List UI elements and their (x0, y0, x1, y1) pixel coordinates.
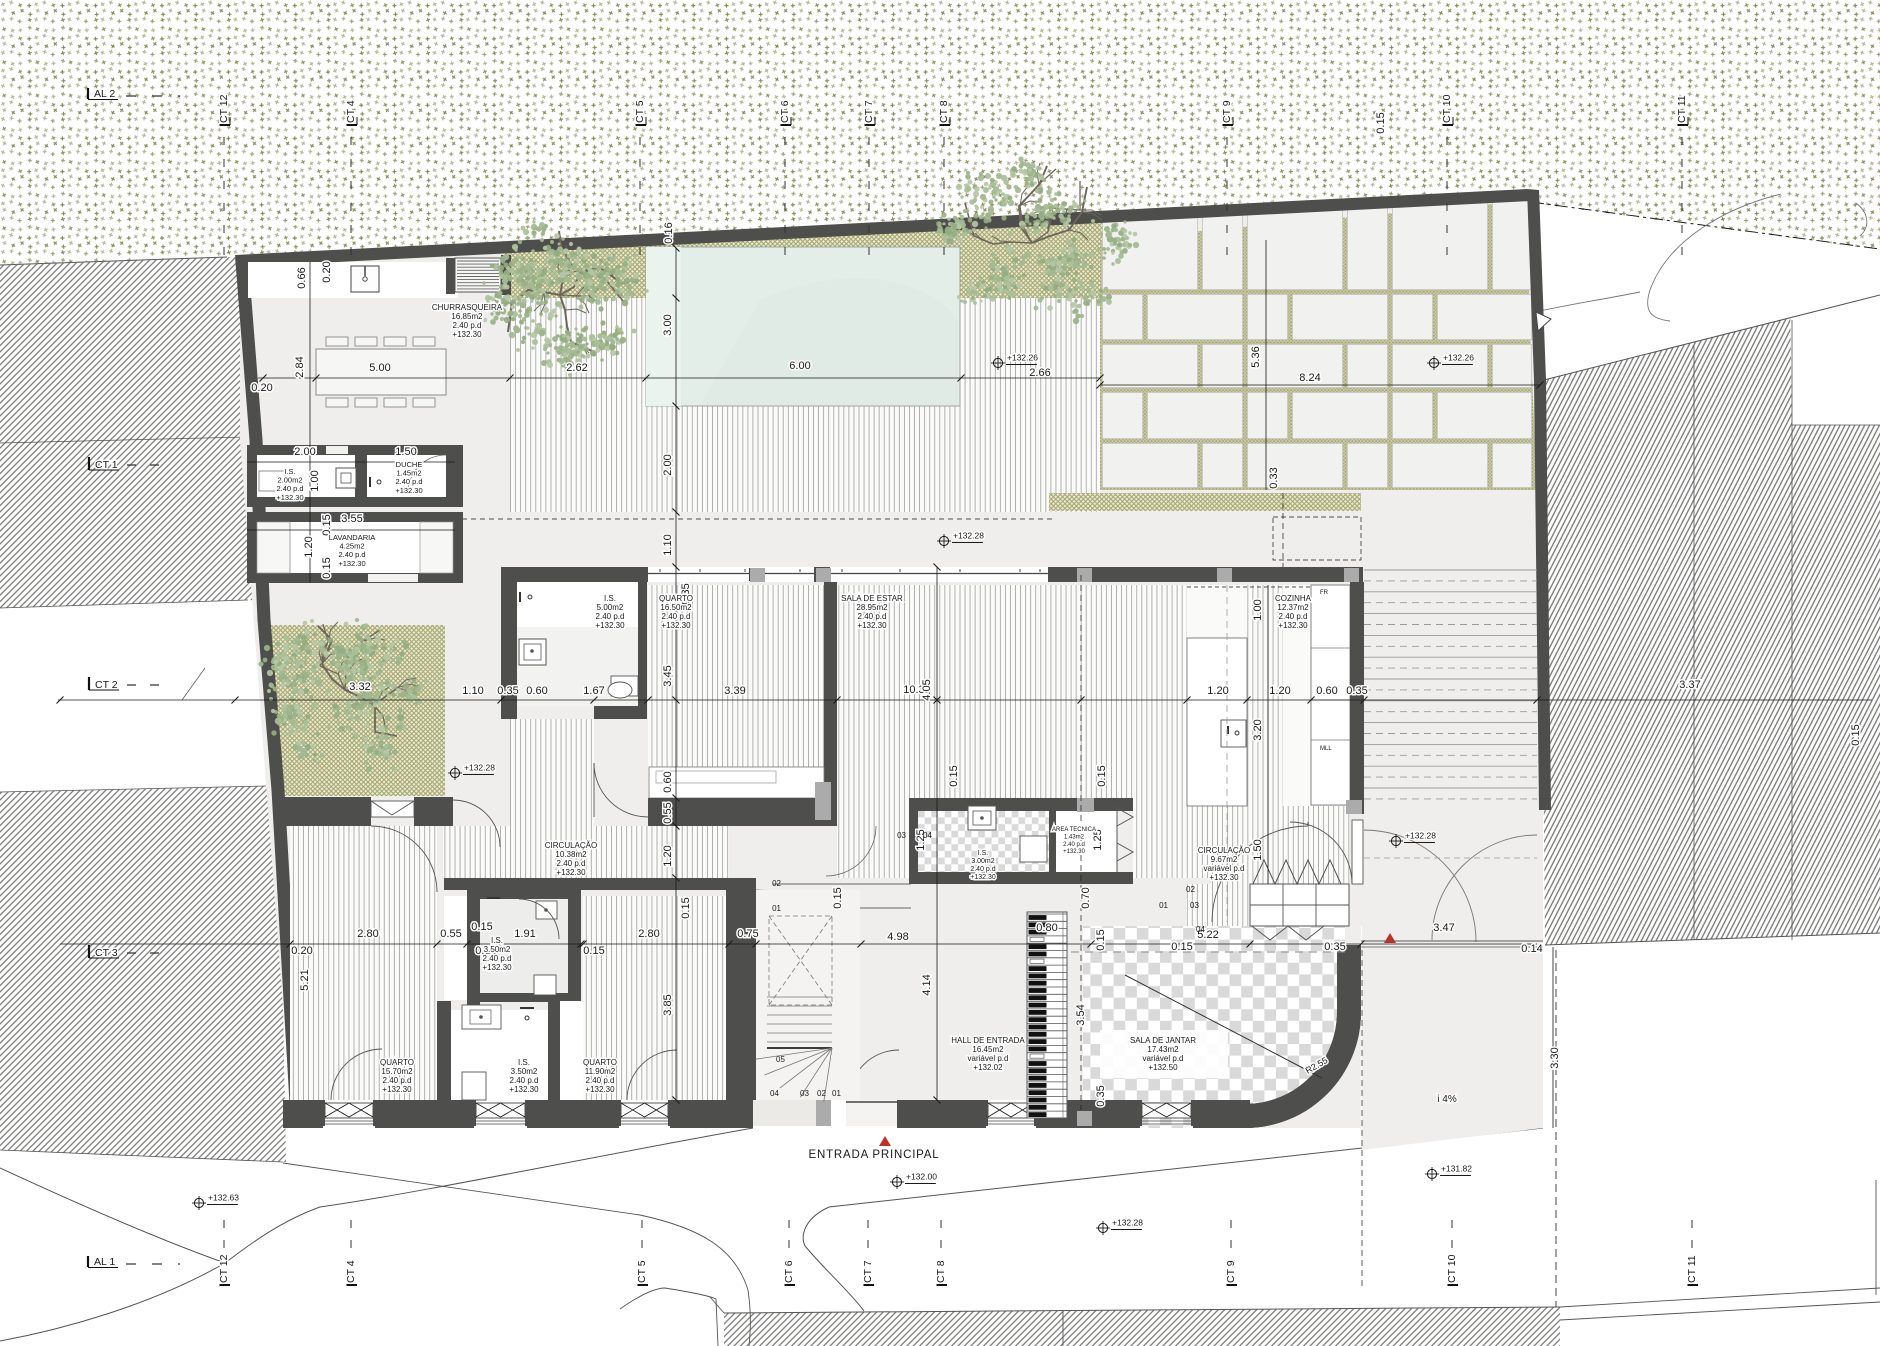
svg-text:QUARTO: QUARTO (583, 1058, 617, 1067)
svg-text:2.40 p.d: 2.40 p.d (1279, 612, 1308, 621)
svg-text:2.40 p.d: 2.40 p.d (596, 612, 625, 621)
svg-text:04: 04 (923, 831, 932, 840)
svg-text:CT 2: CT 2 (95, 679, 118, 691)
svg-text:3.55: 3.55 (341, 513, 362, 525)
svg-text:AREA TECNICA: AREA TECNICA (1052, 827, 1096, 833)
svg-text:04: 04 (1196, 925, 1205, 934)
svg-text:+132.30: +132.30 (857, 621, 887, 630)
svg-text:3.50m2: 3.50m2 (511, 1067, 538, 1076)
svg-text:2.80: 2.80 (357, 928, 378, 940)
svg-text:0.20: 0.20 (251, 382, 272, 394)
svg-text:2.40 p.d: 2.40 p.d (453, 321, 482, 330)
svg-text:3.00: 3.00 (662, 314, 674, 335)
svg-text:05: 05 (776, 1055, 785, 1064)
svg-text:0.15: 0.15 (1375, 112, 1387, 133)
svg-text:1.10: 1.10 (662, 534, 674, 555)
svg-text:+132.30: +132.30 (338, 559, 365, 568)
svg-text:CT 4: CT 4 (345, 100, 357, 123)
svg-text:03: 03 (1190, 901, 1199, 910)
svg-text:3.37: 3.37 (1679, 679, 1700, 691)
svg-text:variável p.d: variável p.d (1143, 1054, 1184, 1063)
svg-text:1.50: 1.50 (395, 446, 416, 458)
svg-text:+132.28: +132.28 (1405, 831, 1436, 841)
svg-text:0.14: 0.14 (1521, 943, 1542, 955)
svg-text:2.40 p.d: 2.40 p.d (557, 859, 586, 868)
svg-text:04: 04 (770, 1089, 779, 1098)
svg-text:+132.30: +132.30 (556, 868, 586, 877)
svg-text:3.30: 3.30 (1549, 1047, 1561, 1068)
svg-text:AL 1: AL 1 (94, 1256, 115, 1268)
svg-text:CIRCULAÇÃO: CIRCULAÇÃO (545, 841, 597, 850)
svg-text:0.15: 0.15 (1096, 765, 1108, 786)
svg-text:0.15: 0.15 (1095, 929, 1107, 950)
svg-text:2.62: 2.62 (566, 362, 587, 374)
svg-text:CT 5: CT 5 (636, 1260, 648, 1283)
svg-text:02: 02 (1186, 885, 1195, 894)
svg-text:0.60: 0.60 (1316, 685, 1337, 697)
svg-text:+132.30: +132.30 (509, 1085, 539, 1094)
svg-text:CT 9: CT 9 (1225, 1260, 1237, 1283)
svg-text:2.40 p.d: 2.40 p.d (1063, 842, 1085, 848)
svg-text:I.S.: I.S. (978, 850, 989, 857)
svg-text:03: 03 (897, 831, 906, 840)
svg-text:3.54: 3.54 (1075, 1004, 1087, 1025)
svg-text:QUARTO: QUARTO (659, 594, 693, 603)
svg-text:2.80: 2.80 (638, 928, 659, 940)
svg-text:01: 01 (772, 904, 781, 913)
svg-text:2.84: 2.84 (294, 356, 306, 377)
svg-text:CT 11: CT 11 (1676, 95, 1688, 123)
svg-text:I.S.: I.S. (518, 1058, 530, 1067)
svg-text:1.20: 1.20 (303, 536, 315, 557)
svg-text:HALL DE ENTRADA: HALL DE ENTRADA (951, 1036, 1025, 1045)
svg-text:MLL: MLL (1320, 746, 1332, 752)
svg-text:3.50m2: 3.50m2 (484, 945, 511, 954)
svg-text:CT 12: CT 12 (218, 1254, 230, 1283)
svg-text:CT 8: CT 8 (938, 100, 950, 123)
svg-text:1.91: 1.91 (514, 928, 535, 940)
svg-text:3.00m2: 3.00m2 (971, 858, 994, 865)
svg-text:0.15: 0.15 (1171, 941, 1192, 953)
svg-text:11.90m2: 11.90m2 (585, 1067, 616, 1076)
svg-text:1.50: 1.50 (1252, 839, 1264, 860)
svg-text:CT 12: CT 12 (218, 94, 230, 123)
svg-text:+132.30: +132.30 (452, 330, 482, 339)
svg-text:12.37m2: 12.37m2 (1277, 603, 1309, 612)
svg-text:2.66: 2.66 (1029, 367, 1050, 379)
svg-text:0.60: 0.60 (662, 771, 674, 792)
svg-text:2.40 p.d: 2.40 p.d (586, 1076, 615, 1085)
svg-text:SALA DE JANTAR: SALA DE JANTAR (1130, 1036, 1196, 1045)
svg-text:1.20: 1.20 (662, 845, 674, 866)
svg-text:2.40 p.d: 2.40 p.d (383, 1076, 412, 1085)
svg-text:16.50m2: 16.50m2 (660, 603, 692, 612)
svg-text:3.47: 3.47 (1433, 922, 1454, 934)
svg-text:03: 03 (800, 1089, 809, 1098)
svg-text:+132.00: +132.00 (906, 1172, 937, 1182)
svg-text:+132.30: +132.30 (1063, 849, 1086, 855)
svg-text:0.15: 0.15 (583, 945, 604, 957)
svg-text:2.40 p.d: 2.40 p.d (858, 612, 887, 621)
svg-text:0.15: 0.15 (1850, 724, 1862, 745)
svg-text:0.35: 0.35 (497, 685, 518, 697)
svg-text:4.05: 4.05 (921, 679, 933, 700)
svg-text:17.43m2: 17.43m2 (1147, 1045, 1179, 1054)
svg-text:+132.26: +132.26 (1443, 353, 1474, 363)
svg-text:3.20: 3.20 (1252, 719, 1264, 740)
svg-text:5.00: 5.00 (369, 362, 390, 374)
svg-text:0.35: 0.35 (1095, 1085, 1107, 1106)
svg-text:02: 02 (817, 1089, 826, 1098)
svg-text:0.20: 0.20 (291, 945, 312, 957)
svg-text:+132.02: +132.02 (973, 1063, 1003, 1072)
svg-text:variável p.d: variável p.d (1204, 864, 1245, 873)
svg-text:0.60: 0.60 (526, 685, 547, 697)
svg-text:2.40 p.d: 2.40 p.d (662, 612, 691, 621)
svg-text:0.55: 0.55 (662, 802, 674, 823)
svg-text:+131.82: +131.82 (1441, 1164, 1472, 1174)
svg-text:1.43m2: 1.43m2 (1064, 834, 1085, 840)
svg-text:1.00: 1.00 (309, 470, 321, 491)
svg-text:2.40 p.d: 2.40 p.d (970, 866, 995, 873)
svg-text:1.20: 1.20 (1269, 685, 1290, 697)
svg-text:QUARTO: QUARTO (380, 1058, 414, 1067)
svg-text:0.15: 0.15 (948, 765, 960, 786)
svg-text:CT 1: CT 1 (95, 459, 118, 471)
svg-text:0.15: 0.15 (832, 887, 844, 908)
svg-text:CT 3: CT 3 (95, 947, 118, 959)
svg-text:CT 9: CT 9 (1221, 100, 1233, 123)
svg-text:+132.30: +132.30 (970, 874, 996, 881)
svg-text:3.45: 3.45 (662, 665, 674, 686)
svg-text:0.75: 0.75 (737, 928, 758, 940)
svg-text:+132.30: +132.30 (585, 1085, 615, 1094)
svg-text:10.38m2: 10.38m2 (555, 850, 587, 859)
svg-text:variável p.d: variável p.d (968, 1054, 1009, 1063)
svg-text:3.32: 3.32 (349, 681, 370, 693)
svg-text:6.00: 6.00 (789, 360, 810, 372)
svg-text:5.00m2: 5.00m2 (597, 603, 624, 612)
svg-text:16.45m2: 16.45m2 (972, 1045, 1004, 1054)
svg-text:2.40 p.d: 2.40 p.d (510, 1076, 539, 1085)
svg-text:0.33: 0.33 (1268, 467, 1280, 488)
svg-text:CT 10: CT 10 (1446, 1254, 1458, 1283)
svg-text:0.35: 0.35 (1346, 685, 1367, 697)
svg-text:4.14: 4.14 (921, 974, 933, 995)
svg-text:15.70m2: 15.70m2 (381, 1067, 413, 1076)
svg-text:28.95m2: 28.95m2 (856, 603, 888, 612)
svg-text:1.67: 1.67 (583, 685, 604, 697)
svg-text:8.24: 8.24 (1299, 372, 1320, 384)
svg-text:CT 6: CT 6 (783, 1260, 795, 1283)
svg-text:02: 02 (772, 879, 781, 888)
svg-text:1.10: 1.10 (462, 685, 483, 697)
svg-text:+132.30: +132.30 (276, 493, 303, 502)
svg-text:9.67m2: 9.67m2 (1211, 855, 1238, 864)
svg-text:+132.28: +132.28 (464, 763, 495, 773)
svg-text:+132.30: +132.30 (482, 963, 512, 972)
svg-text:ENTRADA PRINCIPAL: ENTRADA PRINCIPAL (809, 1149, 940, 1161)
svg-text:+132.30: +132.30 (1209, 873, 1239, 882)
svg-text:CHURRASQUEIRA: CHURRASQUEIRA (432, 303, 503, 312)
svg-text:1.20: 1.20 (1207, 685, 1228, 697)
svg-text:1.00: 1.00 (1252, 599, 1264, 620)
svg-text:+132.30: +132.30 (661, 621, 691, 630)
svg-text:I.S.: I.S. (491, 936, 503, 945)
svg-text:01: 01 (832, 1089, 841, 1098)
svg-text:CT 7: CT 7 (862, 1260, 874, 1283)
svg-text:3.39: 3.39 (724, 685, 745, 697)
svg-text:+132.30: +132.30 (382, 1085, 412, 1094)
svg-text:2.00: 2.00 (662, 454, 674, 475)
svg-text:+132.30: +132.30 (1278, 621, 1308, 630)
svg-text:0.16: 0.16 (663, 222, 675, 243)
svg-text:I.S.: I.S. (604, 594, 616, 603)
svg-text:0.66: 0.66 (296, 267, 308, 288)
svg-text:16.85m2: 16.85m2 (451, 312, 483, 321)
svg-text:0.70: 0.70 (1080, 887, 1092, 908)
svg-text:+132.30: +132.30 (395, 486, 422, 495)
svg-text:0.35: 0.35 (1324, 941, 1345, 953)
svg-text:5.21: 5.21 (299, 969, 311, 990)
svg-text:CT 11: CT 11 (1686, 1255, 1698, 1283)
svg-text:2.40 p.d: 2.40 p.d (483, 954, 512, 963)
svg-text:CT 10: CT 10 (1441, 94, 1453, 123)
svg-text:SALA DE ESTAR: SALA DE ESTAR (841, 594, 903, 603)
svg-text:+132.28: +132.28 (953, 531, 984, 541)
svg-text:COZINHA: COZINHA (1275, 594, 1312, 603)
svg-text:+132.50: +132.50 (1148, 1063, 1178, 1072)
svg-text:4.98: 4.98 (887, 931, 908, 943)
svg-text:0.15: 0.15 (680, 897, 692, 918)
svg-text:FR: FR (1320, 590, 1329, 596)
svg-text:CT 5: CT 5 (634, 100, 646, 123)
svg-text:CT 4: CT 4 (345, 1260, 357, 1283)
svg-text:2.00: 2.00 (294, 446, 315, 458)
svg-text:0.20: 0.20 (321, 261, 333, 282)
svg-text:CIRCULAÇÃO: CIRCULAÇÃO (1198, 846, 1250, 855)
svg-text:5.36: 5.36 (1250, 346, 1262, 367)
svg-text:3.85: 3.85 (662, 994, 674, 1015)
svg-text:+132.28: +132.28 (1112, 1218, 1143, 1228)
svg-text:AL 2: AL 2 (94, 88, 115, 100)
svg-text:CT 7: CT 7 (863, 100, 875, 123)
svg-text:CT 8: CT 8 (935, 1260, 947, 1283)
svg-text:CT 6: CT 6 (779, 100, 791, 123)
svg-text:0.15: 0.15 (471, 921, 492, 933)
svg-text:i 4%: i 4% (1437, 1094, 1457, 1105)
svg-text:0.15: 0.15 (321, 557, 333, 578)
svg-text:01: 01 (1159, 901, 1168, 910)
svg-text:+132.63: +132.63 (208, 1193, 239, 1203)
svg-text:+132.30: +132.30 (595, 621, 625, 630)
svg-text:+132.26: +132.26 (1007, 353, 1038, 363)
svg-text:0.80: 0.80 (1036, 922, 1057, 934)
svg-text:0.55: 0.55 (440, 928, 461, 940)
